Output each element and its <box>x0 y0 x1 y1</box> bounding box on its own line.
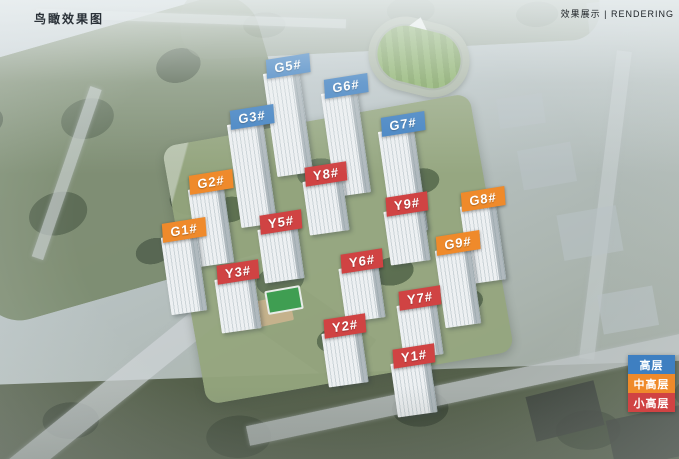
legend: 高层中高层小高层 <box>628 355 675 412</box>
page-title: 鸟瞰效果图 <box>34 10 104 27</box>
building-tag-g6: G6# <box>324 73 368 99</box>
distant-building-1 <box>517 142 577 191</box>
stadium-field <box>371 20 466 95</box>
legend-item-3: 小高层 <box>628 393 675 412</box>
legend-item-1: 高层 <box>628 355 675 374</box>
header-caption: 效果展示 | RENDERING <box>561 7 674 20</box>
distant-building-2 <box>556 205 623 261</box>
legend-item-2: 中高层 <box>628 374 675 393</box>
distant-building-3 <box>597 285 659 334</box>
aerial-rendering: G5#G6#G3#G7#Y8#G2#G8#Y9#Y5#G1#G9#Y6#Y3#Y… <box>0 0 679 459</box>
distant-building-5 <box>496 93 546 129</box>
building-tag-g5: G5# <box>266 53 310 79</box>
